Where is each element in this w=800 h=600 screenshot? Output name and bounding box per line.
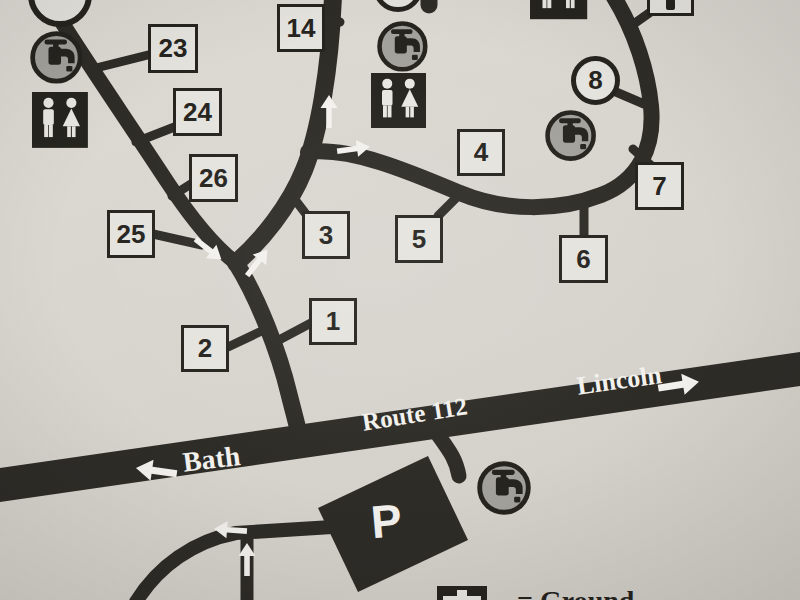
site-stub <box>616 92 644 104</box>
water-faucet-icon <box>380 24 426 70</box>
site-box-26: 26 <box>189 154 238 202</box>
parking-label: P <box>369 493 404 549</box>
site-box-7: 7 <box>635 162 684 210</box>
road-main-lower <box>236 263 299 434</box>
restrooms-icon <box>530 0 587 19</box>
site-stub <box>96 54 152 68</box>
site-stub <box>438 196 458 216</box>
site-box-25: 25 <box>107 210 155 258</box>
site-box-24: 24 <box>173 88 222 136</box>
water-faucet-icon <box>548 113 594 159</box>
site-box-23: 23 <box>148 24 198 73</box>
site-box-3: 3 <box>302 211 350 259</box>
site-box-14: 14 <box>277 4 325 52</box>
campground-map: 23 24 26 25 14 2 1 3 5 4 6 7 8 Route 112… <box>0 0 800 600</box>
site-box-partial <box>647 0 694 16</box>
water-faucet-icon <box>33 34 81 82</box>
site-circle-8: 8 <box>571 56 620 105</box>
legend-text: = Ground <box>517 585 634 600</box>
restrooms-icon <box>371 73 426 128</box>
road-parking-driveway <box>436 432 459 476</box>
water-faucet-icon <box>480 464 529 513</box>
partial-digit <box>666 0 675 10</box>
site-box-6: 6 <box>559 235 608 283</box>
restrooms-icon <box>32 92 88 148</box>
site-box-1: 1 <box>309 298 357 345</box>
site-stub <box>326 22 340 24</box>
site-box-2: 2 <box>181 325 229 372</box>
site-stub <box>279 323 311 340</box>
site-box-5: 5 <box>395 215 443 263</box>
site-stub <box>153 234 202 245</box>
picnic-table-icon <box>437 586 487 600</box>
road-lower-loop <box>136 527 332 600</box>
site-box-4: 4 <box>457 129 505 176</box>
